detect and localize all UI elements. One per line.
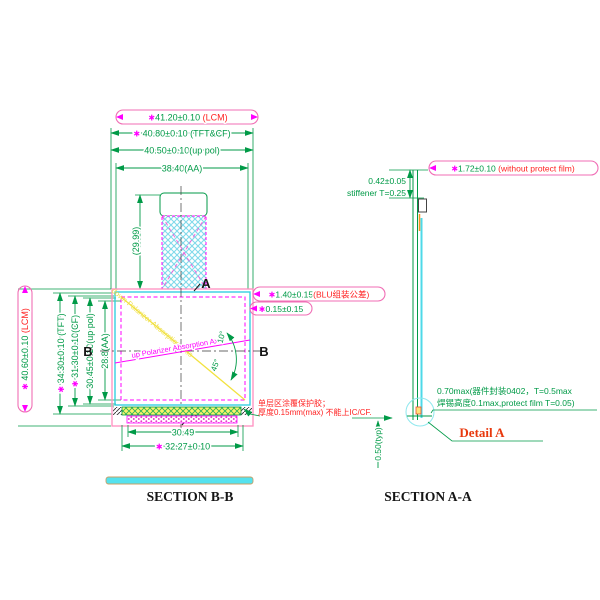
detail-a-label: Detail A — [459, 425, 505, 440]
fpc-hatched-tail — [162, 216, 206, 289]
section-b-label-right: B — [259, 344, 268, 359]
dim-bonding-width-label: ✱ 32.27±0.10 — [156, 442, 210, 452]
dim-cf-height-label: ✱ 31.30±0.10(CF) — [70, 315, 80, 387]
component-note-line2: 焊锡高度0.1max,protect film T=0.05) — [437, 398, 575, 408]
glue-hatch-left — [113, 407, 122, 415]
dim-edge-gap-label: ✱0.15±0.15 — [259, 304, 304, 314]
solder-detail — [416, 407, 421, 414]
section-bb-title: SECTION B-B — [147, 489, 234, 504]
dim-tftcf-width-label: ✱ 40.80±0.10 (TFT&CF) — [133, 129, 230, 139]
engineering-drawing-canvas: ✱41.20±0.10 (LCM) ✱ 40.80±0.10 (TFT&CF) … — [0, 0, 600, 600]
dim-total-thickness-label: ✱1.72±0.10 (without protect film) — [451, 164, 575, 174]
glue-note-line2: 厚度0.15mm(max) 不能上IC/CF. — [258, 407, 372, 417]
dim-ic-width-label: 30.49 — [172, 428, 195, 438]
dim-lcm-height-label: ✱ 40.60±0.10 (LCM) — [20, 308, 30, 390]
dim-blu-tolerance-label: ✱1.40±0.15(BLU组装公差) — [269, 290, 370, 300]
dim-stiffener-note: stiffener T=0.25 — [347, 188, 406, 198]
module-side-profile — [106, 477, 253, 484]
component-0402 — [419, 199, 427, 212]
fpc-bonding-band — [122, 407, 241, 415]
section-b-label-left: B — [83, 344, 92, 359]
dim-lcm-width-label: ✱41.20±0.10 (LCM) — [148, 113, 227, 123]
section-aa-title: SECTION A-A — [384, 489, 472, 504]
svg-text:A: A — [201, 276, 211, 291]
fpc-connector — [160, 193, 207, 216]
lcd-module-drawing: ✱41.20±0.10 (LCM) ✱ 40.80±0.10 (TFT&CF) … — [0, 0, 600, 600]
dim-aa-width-label: 38.40(AA) — [162, 164, 203, 174]
dim-fpc-tail-label: 0.50(typ) — [373, 427, 383, 461]
ic-band — [127, 416, 237, 423]
glue-note-line1: 单层区涂覆保护胶； — [258, 398, 330, 408]
dim-tft-height-label: ✱ 34.30±0.10 (TFT) — [56, 313, 66, 392]
dim-uppol-width-label: 40.50±0.10(up pol) — [144, 146, 220, 156]
dim-fpc-length-label: (29.99) — [131, 227, 141, 256]
component-note-line1: 0.70max(器件封装0402，T=0.5max — [437, 386, 573, 396]
dim-stiffener-value: 0.42±0.05 — [368, 176, 406, 186]
